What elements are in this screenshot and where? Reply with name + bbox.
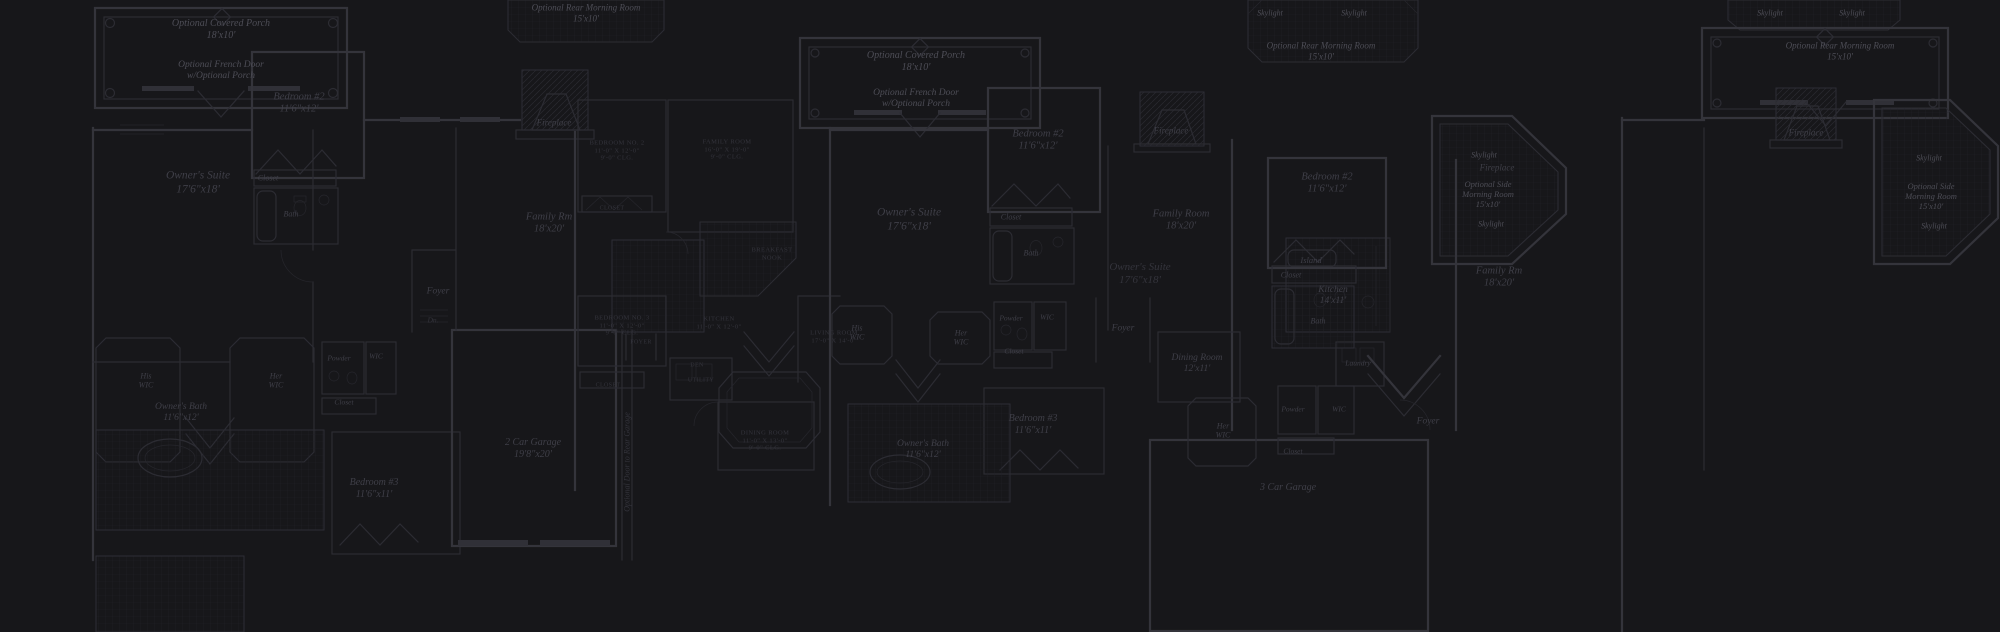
door-arc bbox=[694, 402, 718, 426]
door-arc bbox=[281, 250, 313, 282]
morning-room-tile bbox=[1248, 0, 1418, 62]
porch-column-icon bbox=[329, 19, 338, 28]
bathtub-icon bbox=[257, 191, 276, 241]
far-right-plan-walls bbox=[1622, 0, 1998, 632]
sink-icon bbox=[1053, 237, 1063, 247]
center-plan-walls bbox=[578, 100, 840, 470]
bath-tile bbox=[1272, 286, 1354, 348]
kitchen-tile bbox=[612, 240, 704, 332]
overlay-plan-walls bbox=[1188, 158, 1456, 466]
stairs-icon bbox=[420, 310, 448, 322]
bathtub-icon bbox=[993, 231, 1012, 281]
porch-column-icon bbox=[106, 19, 115, 28]
porch-outline bbox=[95, 8, 347, 108]
sink-icon bbox=[319, 195, 329, 205]
porch-column-icon bbox=[329, 89, 338, 98]
floorplan-background: Optional Covered Porch18'x10'Optional Fr… bbox=[0, 0, 2000, 632]
garage-outline bbox=[1150, 440, 1428, 631]
washer-icon bbox=[676, 364, 692, 380]
dryer-icon bbox=[696, 364, 712, 380]
owners-bath-tile bbox=[848, 404, 1010, 502]
morning-room-tile bbox=[1728, 0, 1900, 30]
porch-outline bbox=[800, 38, 1040, 128]
garage-outline bbox=[452, 330, 616, 546]
toilet-icon bbox=[294, 201, 306, 216]
porch-column-icon bbox=[106, 89, 115, 98]
toilet-icon bbox=[1030, 241, 1042, 256]
side-morning-room-tile bbox=[1882, 108, 1990, 256]
owners-bath-tile bbox=[96, 430, 324, 530]
floorplan-linework bbox=[0, 0, 2000, 632]
right-plan-walls bbox=[800, 0, 1566, 631]
french-door-icon bbox=[198, 91, 244, 117]
morning-room-tile bbox=[508, 0, 664, 42]
french-door-icon bbox=[900, 113, 940, 137]
hall-arrow-icon bbox=[896, 360, 940, 388]
breakfast-nook-tile bbox=[700, 222, 796, 296]
hall-arrow-icon bbox=[1368, 356, 1440, 398]
